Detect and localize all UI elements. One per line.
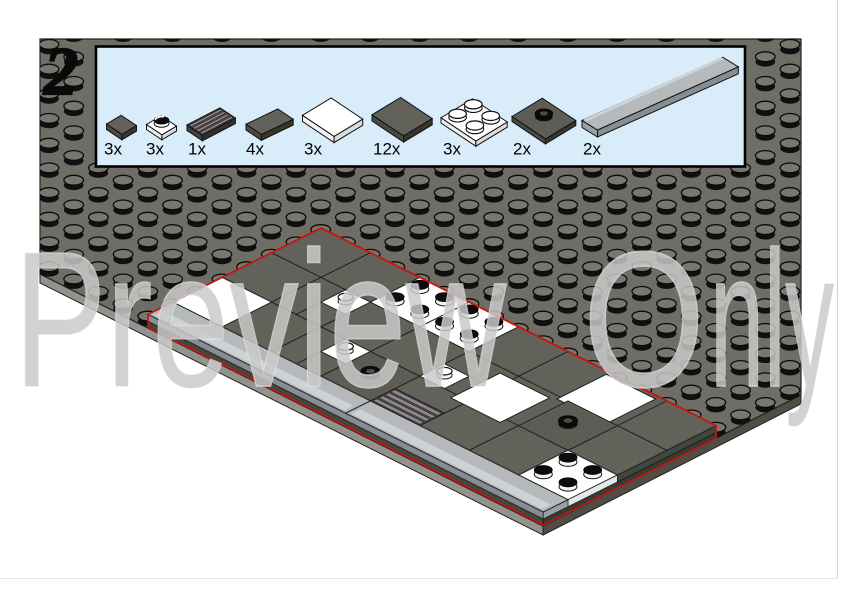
svg-text:3x: 3x bbox=[146, 140, 164, 159]
svg-text:nly: nly bbox=[710, 211, 834, 427]
svg-text:O: O bbox=[583, 211, 705, 427]
svg-text:2x: 2x bbox=[513, 140, 531, 159]
svg-text:3x: 3x bbox=[443, 140, 461, 159]
svg-text:Preview: Preview bbox=[14, 211, 506, 427]
svg-text:1x: 1x bbox=[188, 140, 206, 159]
svg-text:12x: 12x bbox=[373, 140, 401, 159]
svg-text:2: 2 bbox=[43, 33, 78, 109]
svg-text:2x: 2x bbox=[583, 140, 601, 159]
svg-text:4x: 4x bbox=[246, 140, 264, 159]
svg-text:3x: 3x bbox=[304, 140, 322, 159]
svg-text:3x: 3x bbox=[104, 140, 122, 159]
